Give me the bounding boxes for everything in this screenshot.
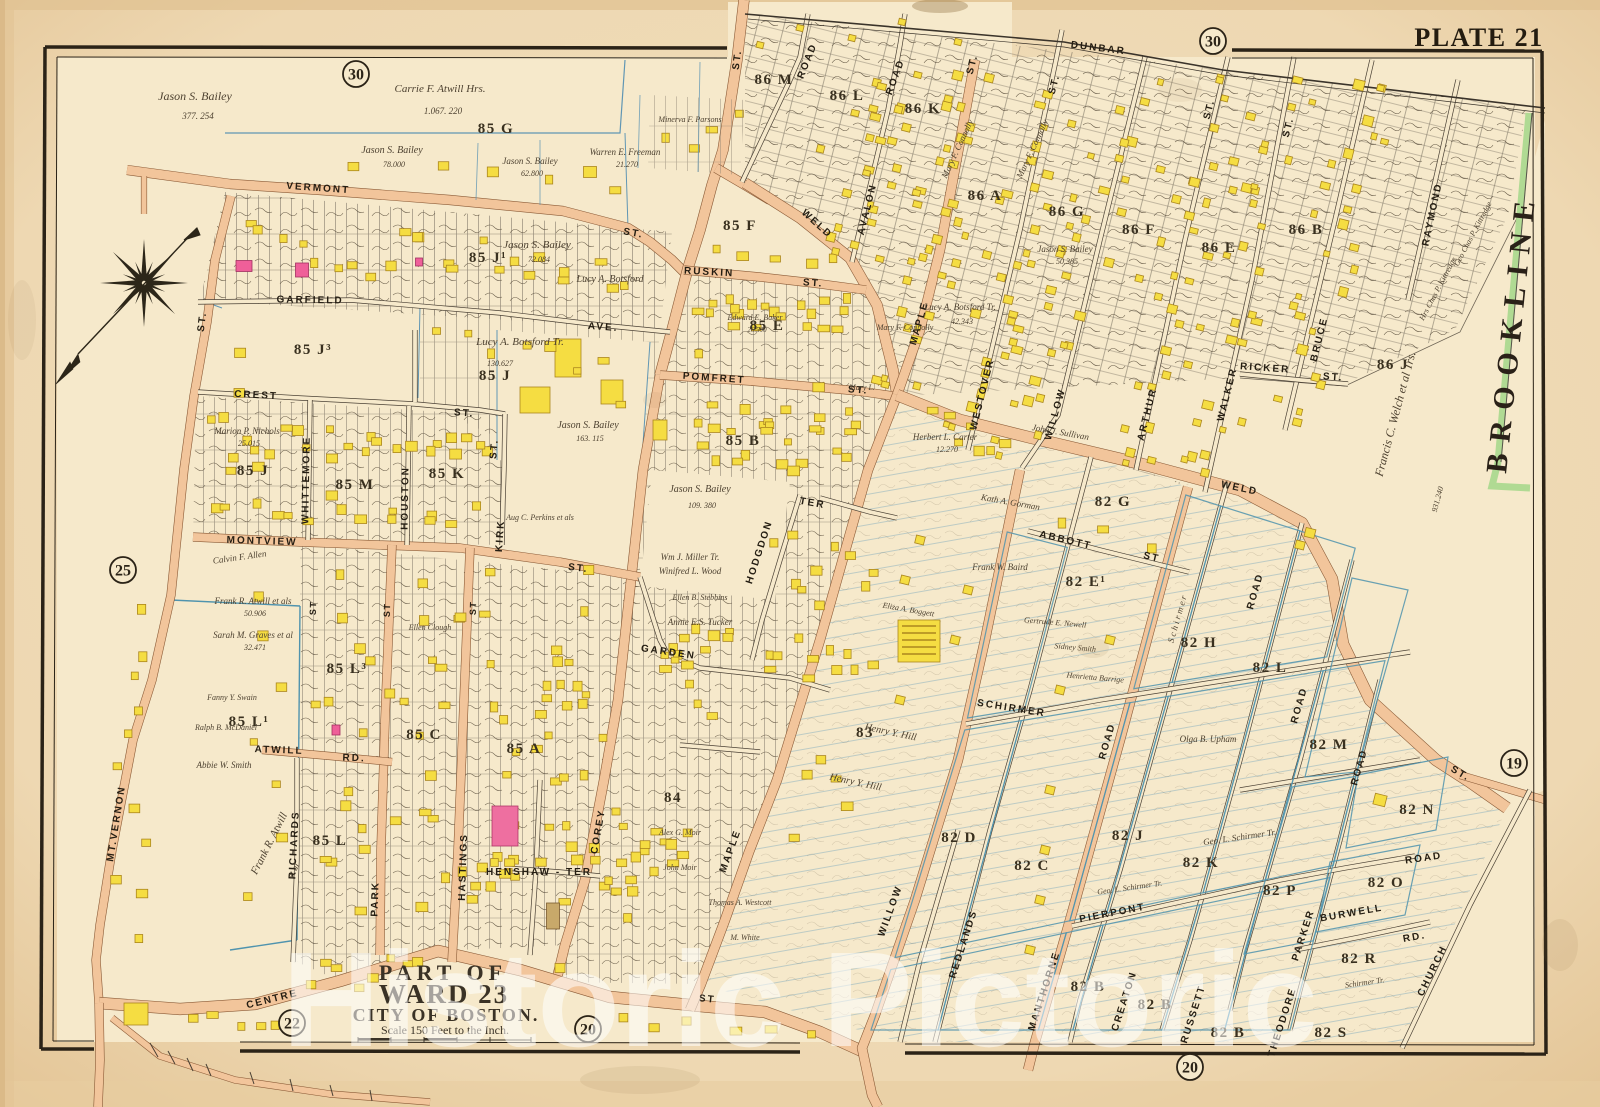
svg-text:Mary F. Connolly: Mary F. Connolly <box>876 323 934 332</box>
svg-text:82 E¹: 82 E¹ <box>1066 574 1107 590</box>
svg-text:WHITTEMORE: WHITTEMORE <box>300 436 313 525</box>
svg-text:82 M: 82 M <box>1310 737 1349 753</box>
svg-text:Lucy A. Botsford: Lucy A. Botsford <box>576 274 645 285</box>
svg-text:85 G: 85 G <box>478 121 514 137</box>
svg-text:Abbie W. Smith: Abbie W. Smith <box>196 760 252 770</box>
svg-text:86 B: 86 B <box>1289 222 1324 238</box>
svg-text:82 K: 82 K <box>1183 855 1219 871</box>
svg-text:86 A: 86 A <box>968 188 1003 204</box>
svg-text:82 O: 82 O <box>1368 875 1404 891</box>
svg-text:25.015: 25.015 <box>238 439 260 448</box>
svg-text:Lucy A. Botsford Tr.: Lucy A. Botsford Tr. <box>475 336 564 348</box>
svg-text:Aug C. Perkins et als: Aug C. Perkins et als <box>505 513 574 522</box>
svg-text:RD.: RD. <box>342 753 366 765</box>
svg-text:85 M: 85 M <box>336 477 375 493</box>
svg-text:HENSHAW - TER: HENSHAW - TER <box>486 867 592 878</box>
svg-text:82 R: 82 R <box>1341 951 1377 967</box>
svg-text:Frank R. Atwill et als: Frank R. Atwill et als <box>213 596 292 606</box>
svg-text:86 F: 86 F <box>1122 222 1156 238</box>
svg-text:Herbert L. Carter: Herbert L. Carter <box>912 432 978 442</box>
svg-text:Thomas A. Westcott: Thomas A. Westcott <box>709 898 773 907</box>
svg-text:85 J: 85 J <box>479 368 511 384</box>
svg-text:32.471: 32.471 <box>243 643 266 652</box>
svg-text:Fanny Y. Swain: Fanny Y. Swain <box>206 693 257 702</box>
svg-text:82 P: 82 P <box>1263 883 1297 899</box>
svg-text:85 B: 85 B <box>726 433 761 449</box>
svg-text:21.270: 21.270 <box>616 160 638 169</box>
svg-text:86 G: 86 G <box>1049 204 1085 220</box>
svg-text:82 L: 82 L <box>1253 660 1288 676</box>
svg-text:Ralph B. McDaniel: Ralph B. McDaniel <box>194 723 258 732</box>
svg-text:82 S: 82 S <box>1314 1025 1347 1041</box>
svg-text:Wm J. Miller Tr.: Wm J. Miller Tr. <box>661 552 720 562</box>
svg-text:ST.: ST. <box>803 277 824 289</box>
svg-text:163. 115: 163. 115 <box>576 434 603 443</box>
svg-text:Jason S. Bailey: Jason S. Bailey <box>502 156 557 166</box>
svg-text:85 A: 85 A <box>507 741 542 757</box>
svg-text:85 L: 85 L <box>313 833 348 849</box>
svg-text:Olga B. Upham: Olga B. Upham <box>1180 734 1237 744</box>
svg-text:ST.: ST. <box>568 562 589 575</box>
svg-text:85 F: 85 F <box>723 218 757 234</box>
svg-text:Lucy A. Botsford Tr.: Lucy A. Botsford Tr. <box>923 302 996 312</box>
svg-text:Carrie F. Atwill Hrs.: Carrie F. Atwill Hrs. <box>395 83 486 95</box>
svg-text:30: 30 <box>1205 34 1221 51</box>
svg-text:PLATE 21: PLATE 21 <box>1414 23 1543 52</box>
svg-text:Marion P. Nichols: Marion P. Nichols <box>213 426 280 436</box>
svg-text:Jason S. Bailey: Jason S. Bailey <box>557 420 619 431</box>
svg-text:86 L: 86 L <box>830 88 865 104</box>
svg-text:82 D: 82 D <box>941 830 977 846</box>
svg-text:84: 84 <box>664 790 682 806</box>
svg-text:86 K: 86 K <box>905 101 941 117</box>
svg-text:30: 30 <box>348 67 364 84</box>
svg-text:ST.: ST. <box>488 438 501 459</box>
svg-text:AVE.: AVE. <box>588 321 619 334</box>
svg-text:Minerva F. Parsons: Minerva F. Parsons <box>657 115 721 124</box>
svg-text:377. 254: 377. 254 <box>181 111 214 121</box>
svg-text:82 C: 82 C <box>1014 858 1050 874</box>
svg-text:82 J: 82 J <box>1112 828 1144 844</box>
svg-text:Ellen B. Stebbins: Ellen B. Stebbins <box>672 593 728 602</box>
svg-text:86 E: 86 E <box>1202 240 1237 256</box>
svg-text:Sarah M. Graves et al: Sarah M. Graves et al <box>213 630 293 640</box>
svg-text:42.343: 42.343 <box>951 317 973 326</box>
svg-text:Frank W. Baird: Frank W. Baird <box>971 562 1028 572</box>
svg-text:HOUSTON: HOUSTON <box>399 466 411 530</box>
svg-text:50.906: 50.906 <box>244 609 266 618</box>
svg-text:Annie E.S. Tucker: Annie E.S. Tucker <box>667 617 733 627</box>
svg-text:85 J¹: 85 J¹ <box>469 250 507 266</box>
svg-text:86 M: 86 M <box>755 72 794 88</box>
svg-text:ST: ST <box>382 602 393 617</box>
svg-text:Winifred L. Wood: Winifred L. Wood <box>659 566 722 576</box>
svg-text:85 J³: 85 J³ <box>294 342 332 358</box>
svg-text:82 H: 82 H <box>1181 635 1217 651</box>
svg-text:85 L³: 85 L³ <box>327 661 368 677</box>
svg-text:130.627: 130.627 <box>487 359 514 368</box>
svg-text:Ellen Clough: Ellen Clough <box>408 623 451 632</box>
svg-text:19: 19 <box>1506 756 1522 773</box>
svg-text:50.385: 50.385 <box>1056 257 1078 266</box>
svg-text:82 G: 82 G <box>1095 494 1131 510</box>
svg-text:Alex G. Moir: Alex G. Moir <box>658 828 702 837</box>
svg-text:Jason S. Bailey: Jason S. Bailey <box>158 89 232 103</box>
svg-text:85 C: 85 C <box>406 727 442 743</box>
svg-text:CREST: CREST <box>234 389 278 402</box>
svg-text:ATWILL: ATWILL <box>254 744 303 757</box>
svg-text:PARK: PARK <box>369 881 381 917</box>
svg-text:ST.: ST. <box>1323 371 1344 383</box>
svg-text:25: 25 <box>115 563 131 580</box>
svg-text:26.590: 26.590 <box>747 326 767 334</box>
svg-text:109. 380: 109. 380 <box>688 501 716 510</box>
svg-text:John Moir: John Moir <box>663 863 697 872</box>
svg-text:Jason S. Bailey: Jason S. Bailey <box>361 145 423 156</box>
svg-text:Jason S. Bailey: Jason S. Bailey <box>1037 244 1092 254</box>
svg-text:72.084: 72.084 <box>528 255 550 264</box>
svg-text:12.270: 12.270 <box>936 445 958 454</box>
svg-text:ST: ST <box>308 600 319 615</box>
svg-text:Jason S. Bailey: Jason S. Bailey <box>503 239 571 251</box>
svg-text:78.000: 78.000 <box>383 160 405 169</box>
svg-text:Edward E. Baker: Edward E. Baker <box>726 313 783 322</box>
svg-text:62.800: 62.800 <box>521 169 543 178</box>
svg-text:ST: ST <box>468 600 479 615</box>
svg-text:Mary L.: Mary L. <box>848 383 875 392</box>
svg-text:85 K: 85 K <box>429 466 465 482</box>
svg-text:Historic Pictoric: Historic Pictoric <box>282 924 1317 1075</box>
svg-text:ST.: ST. <box>454 407 475 419</box>
svg-text:82 N: 82 N <box>1399 802 1435 818</box>
svg-text:85 J: 85 J <box>237 463 269 479</box>
svg-text:Jason S. Bailey: Jason S. Bailey <box>669 484 731 495</box>
svg-text:Warren E. Freeman: Warren E. Freeman <box>590 147 661 157</box>
svg-text:GARFIELD: GARFIELD <box>276 294 343 306</box>
svg-text:1.067. 220: 1.067. 220 <box>424 106 463 116</box>
svg-text:KIRK: KIRK <box>494 519 507 552</box>
